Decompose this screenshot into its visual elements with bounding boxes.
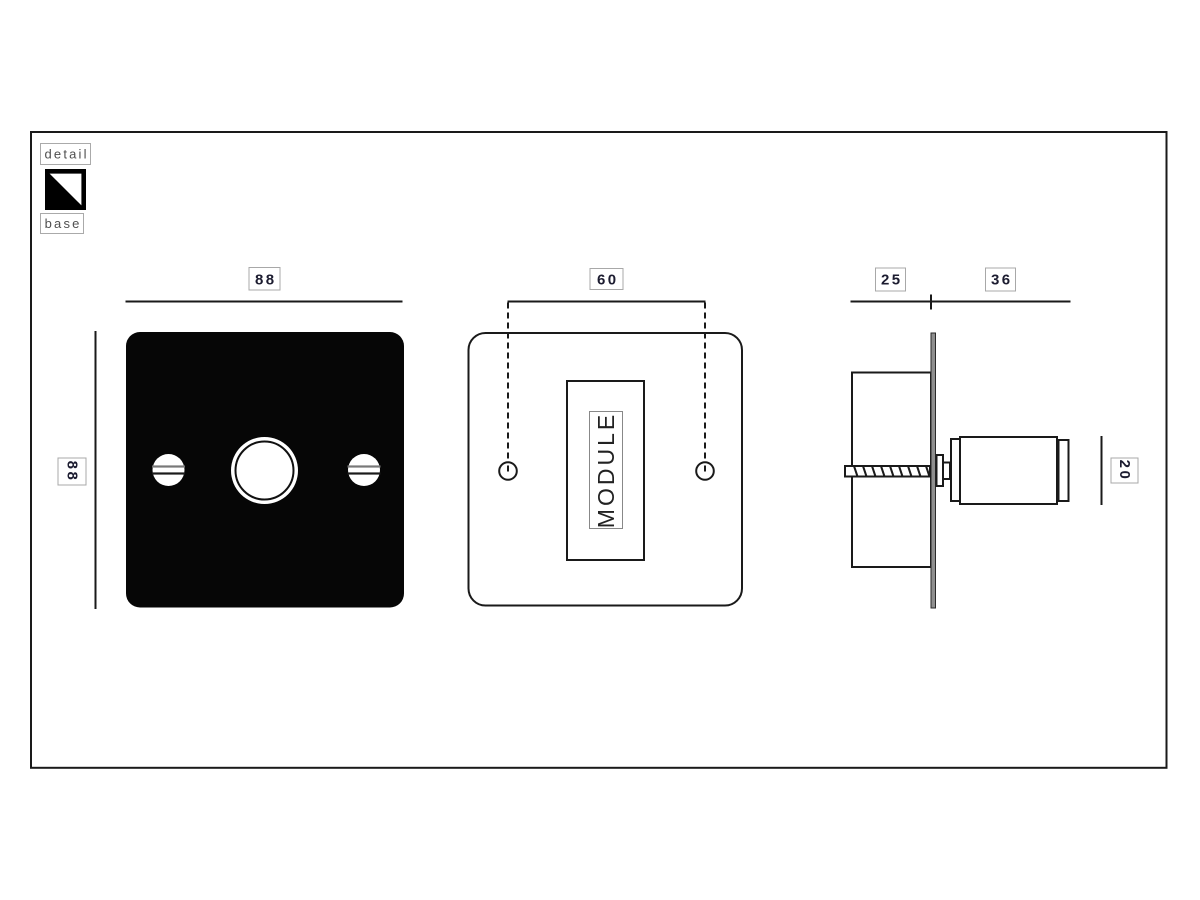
svg-text:36: 36 — [991, 272, 1013, 289]
svg-text:detail: detail — [44, 147, 88, 162]
svg-text:20: 20 — [1116, 460, 1133, 482]
svg-text:MODULE: MODULE — [593, 412, 619, 528]
svg-text:60: 60 — [597, 272, 619, 289]
svg-text:25: 25 — [881, 272, 903, 289]
svg-text:88: 88 — [64, 461, 81, 483]
svg-text:88: 88 — [255, 272, 277, 289]
svg-text:base: base — [45, 216, 82, 231]
